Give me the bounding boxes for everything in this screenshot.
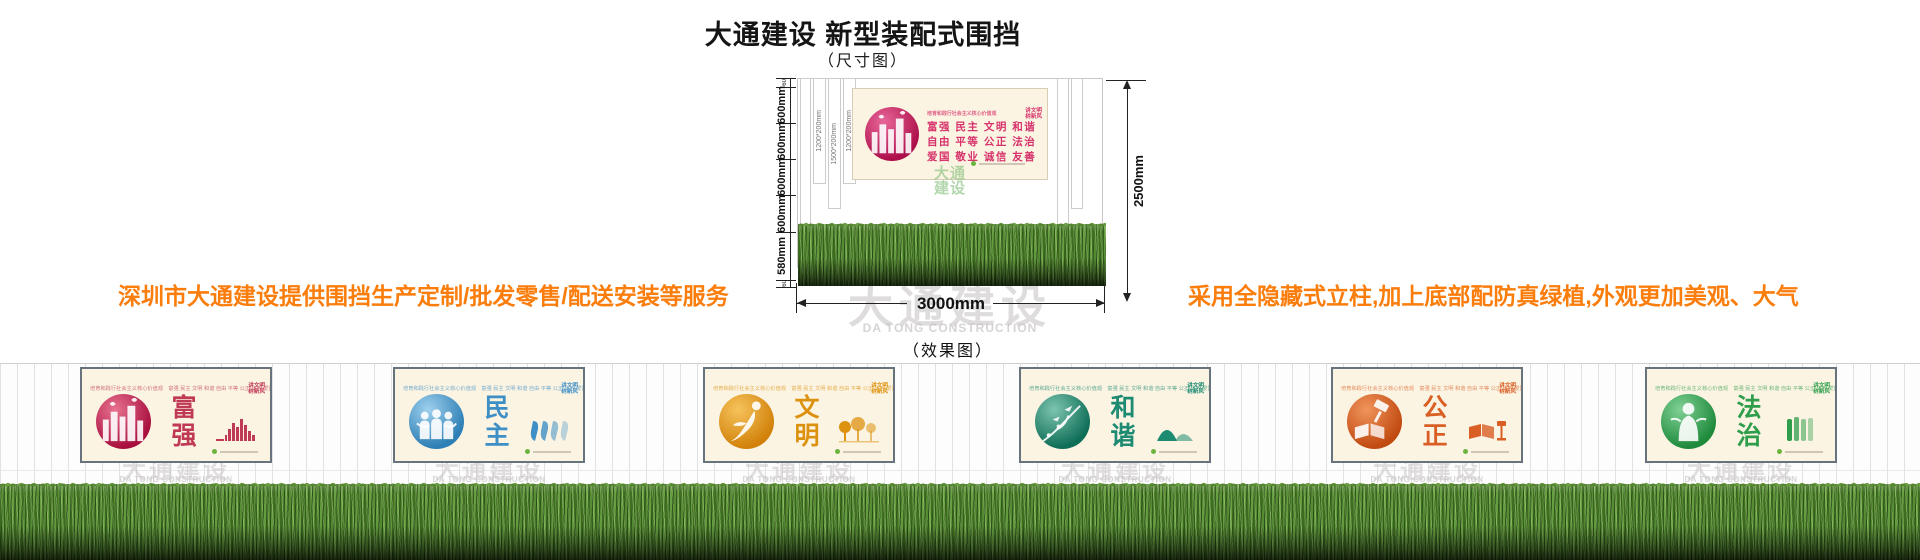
badge-line: 树新风: [561, 388, 578, 394]
green-dot-icon: [835, 449, 840, 454]
badge-line: 树新风: [871, 388, 888, 394]
tiny-text-bar: [1159, 451, 1197, 453]
dim-label: 60: [782, 280, 788, 287]
tiny-text-bar: [843, 451, 881, 453]
fine-print-line: [1151, 449, 1197, 454]
green-dot-icon: [525, 449, 530, 454]
post-size-label: 1500*200mm: [831, 123, 838, 165]
people-papercut-icon: [409, 394, 464, 449]
green-logo-line: 建设: [934, 181, 966, 196]
arrow-down-icon: [1123, 293, 1131, 302]
left-note: 深圳市大通建设提供围挡生产定制/批发零售/配送安装等服务: [118, 277, 729, 311]
banner-badge: 讲文明 树新风: [1025, 107, 1042, 119]
panel-word: 民 主: [479, 394, 515, 450]
arrow-up-icon: [1123, 80, 1131, 89]
green-dot-icon: [212, 449, 217, 454]
dim-tick: [776, 287, 796, 288]
panel-word: 文 明: [789, 394, 825, 450]
fine-print-line: [525, 449, 571, 454]
word-char: 治: [1731, 422, 1767, 450]
green-dot-icon: [1463, 449, 1468, 454]
dim-tick: [1106, 80, 1146, 81]
size-diagram-label: （尺寸图）: [463, 47, 1263, 71]
fine-print-line: [835, 449, 881, 454]
word-char: 正: [1417, 422, 1453, 450]
values-row: 自由 平等 公正 法治: [927, 135, 1036, 150]
word-char: 富: [166, 394, 202, 422]
word-char: 明: [789, 422, 825, 450]
panel-word: 富 强: [166, 394, 202, 450]
panel-top-slogan: 培育和践行社会主义核心价值观 富强 民主 文明 和谐 自由 平等 公正 法治 爱…: [1029, 384, 1211, 392]
badge-line: 树新风: [248, 388, 265, 394]
dim-label: 580mm: [776, 237, 788, 275]
mountains-icon: [1151, 415, 1199, 445]
core-value-panel: 培育和践行社会主义核心价值观 富强 民主 文明 和谐 自由 平等 公正 法治 爱…: [80, 367, 272, 463]
city-papercut-icon: [865, 107, 919, 161]
poster: 大通建设 新型装配式围挡 （尺寸图） 深圳市大通建设提供围挡生产定制/批发零售/…: [0, 0, 1920, 560]
badge-line: 树新风: [1499, 388, 1516, 394]
panel-badge: 讲文明 树新风: [871, 382, 888, 394]
dim-tick: [1104, 286, 1105, 313]
left-dim-segment: 600mm: [758, 159, 788, 195]
panel-top-slogan: 培育和践行社会主义核心价值观 富强 民主 文明 和谐 自由 平等 公正 法治 爱…: [713, 384, 895, 392]
left-dim-segment: 600mm: [758, 195, 788, 232]
dim-tick: [796, 283, 797, 313]
width-dim-line: [993, 303, 1105, 304]
core-value-panel: 培育和践行社会主义核心价值观 富强 民主 文明 和谐 自由 平等 公正 法治 爱…: [1645, 367, 1837, 463]
fence-post-labeled: 1200*200mm: [813, 78, 826, 184]
values-row: 富强 民主 文明 和谐: [927, 120, 1036, 135]
fine-print-line: [971, 161, 1025, 166]
panel-word: 法 治: [1731, 394, 1767, 450]
hedge-grass: [798, 224, 1106, 286]
dim-label: 600mm: [776, 195, 788, 233]
left-dim-segment: 600mm: [758, 87, 788, 123]
dim-label: 600mm: [776, 86, 788, 124]
dim-label: 600mm: [776, 158, 788, 196]
core-values-text: 富强 民主 文明 和谐 自由 平等 公正 法治 爱国 敬业 诚信 友善: [927, 120, 1036, 165]
word-char: 文: [789, 394, 825, 422]
green-logo-watermark: 大通 建设: [934, 166, 966, 196]
book-gavel-icon: [1463, 415, 1511, 445]
word-char: 民: [479, 394, 515, 422]
panel-badge: 讲文明 树新风: [561, 382, 578, 394]
core-value-panel: 培育和践行社会主义核心价值观 富强 民主 文明 和谐 自由 平等 公正 法治 爱…: [393, 367, 585, 463]
tiny-text-bar: [220, 451, 258, 453]
fine-print-line: [212, 449, 258, 454]
city-skyline-icon: [212, 415, 260, 445]
thumbs-icon: [525, 415, 573, 445]
fine-print-line: [1463, 449, 1509, 454]
seal-icon: [1777, 415, 1825, 445]
core-value-panel: 培育和践行社会主义核心价值观 富强 民主 文明 和谐 自由 平等 公正 法治 爱…: [1331, 367, 1523, 463]
panel-badge: 讲文明 树新风: [1187, 382, 1204, 394]
gavel-papercut-icon: [1347, 394, 1402, 449]
badge-line: 树新风: [1813, 388, 1830, 394]
panel-badge: 讲文明 树新风: [248, 382, 265, 394]
panel-badge: 讲文明 树新风: [1499, 382, 1516, 394]
green-dot-icon: [971, 161, 976, 166]
width-dim-line: [797, 303, 907, 304]
dim-label: 600mm: [776, 122, 788, 160]
dancer-papercut-icon: [719, 394, 774, 449]
trees-icon: [835, 415, 883, 445]
word-char: 和: [1105, 394, 1141, 422]
panel-word: 公 正: [1417, 394, 1453, 450]
height-dim-label: 2500mm: [1131, 155, 1146, 207]
panel-top-slogan: 培育和践行社会主义核心价值观 富强 民主 文明 和谐 自由 平等 公正 法治 爱…: [1655, 384, 1837, 392]
tiny-text-bar: [533, 451, 571, 453]
word-char: 主: [479, 422, 515, 450]
fence-post: [1071, 78, 1083, 209]
left-dim-segment: 600mm: [758, 123, 788, 159]
city-papercut-icon: [96, 394, 151, 449]
tiny-text-bar: [1785, 451, 1823, 453]
banner-top-slogan: 培育和践行社会主义核心价值观: [927, 110, 996, 117]
right-note: 采用全隐藏式立柱,加上底部配防真绿植,外观更加美观、大气: [1188, 277, 1799, 311]
effect-diagram-label: （效果图）: [848, 337, 1048, 361]
artificial-grass-strip: [0, 484, 1920, 560]
tiny-text-bar: [1471, 451, 1509, 453]
panel-top-slogan: 培育和践行社会主义核心价值观 富强 民主 文明 和谐 自由 平等 公正 法治 爱…: [1341, 384, 1523, 392]
word-char: 公: [1417, 394, 1453, 422]
left-dim-segment: 580mm: [758, 232, 788, 280]
fence-post-labeled: 1500*200mm: [828, 78, 841, 209]
post-size-label: 1200*200mm: [816, 110, 823, 152]
panel-top-slogan: 培育和践行社会主义核心价值观 富强 民主 文明 和谐 自由 平等 公正 法治 爱…: [90, 384, 272, 392]
tiny-text-bar: [979, 163, 1025, 165]
dim-line: [790, 78, 791, 287]
watermark-en: DA TONG CONSTRUCTION: [820, 321, 1080, 335]
width-dim-label: 3000mm: [905, 294, 997, 314]
word-char: 强: [166, 422, 202, 450]
core-value-panel: 培育和践行社会主义核心价值观 富强 民主 文明 和谐 自由 平等 公正 法治 爱…: [703, 367, 895, 463]
badge-line: 树新风: [1187, 388, 1204, 394]
arrow-left-icon: [797, 299, 806, 307]
panel-badge: 讲文明 树新风: [1813, 382, 1830, 394]
core-value-panel: 培育和践行社会主义核心价值观 富强 民主 文明 和谐 自由 平等 公正 法治 爱…: [1019, 367, 1211, 463]
word-char: 谐: [1105, 422, 1141, 450]
badge-line: 树新风: [1025, 113, 1042, 119]
fine-print-line: [1777, 449, 1823, 454]
figure-papercut-icon: [1661, 394, 1716, 449]
panel-word: 和 谐: [1105, 394, 1141, 450]
green-logo-line: 大通: [934, 166, 966, 181]
dim-label: 60: [782, 79, 788, 86]
green-dot-icon: [1151, 449, 1156, 454]
height-dim-line: [1127, 83, 1128, 298]
birds-papercut-icon: [1035, 394, 1090, 449]
word-char: 法: [1731, 394, 1767, 422]
panel-top-slogan: 培育和践行社会主义核心价值观 富强 民主 文明 和谐 自由 平等 公正 法治 爱…: [403, 384, 585, 392]
green-dot-icon: [1777, 449, 1782, 454]
left-dim-segment: 60: [758, 280, 788, 287]
